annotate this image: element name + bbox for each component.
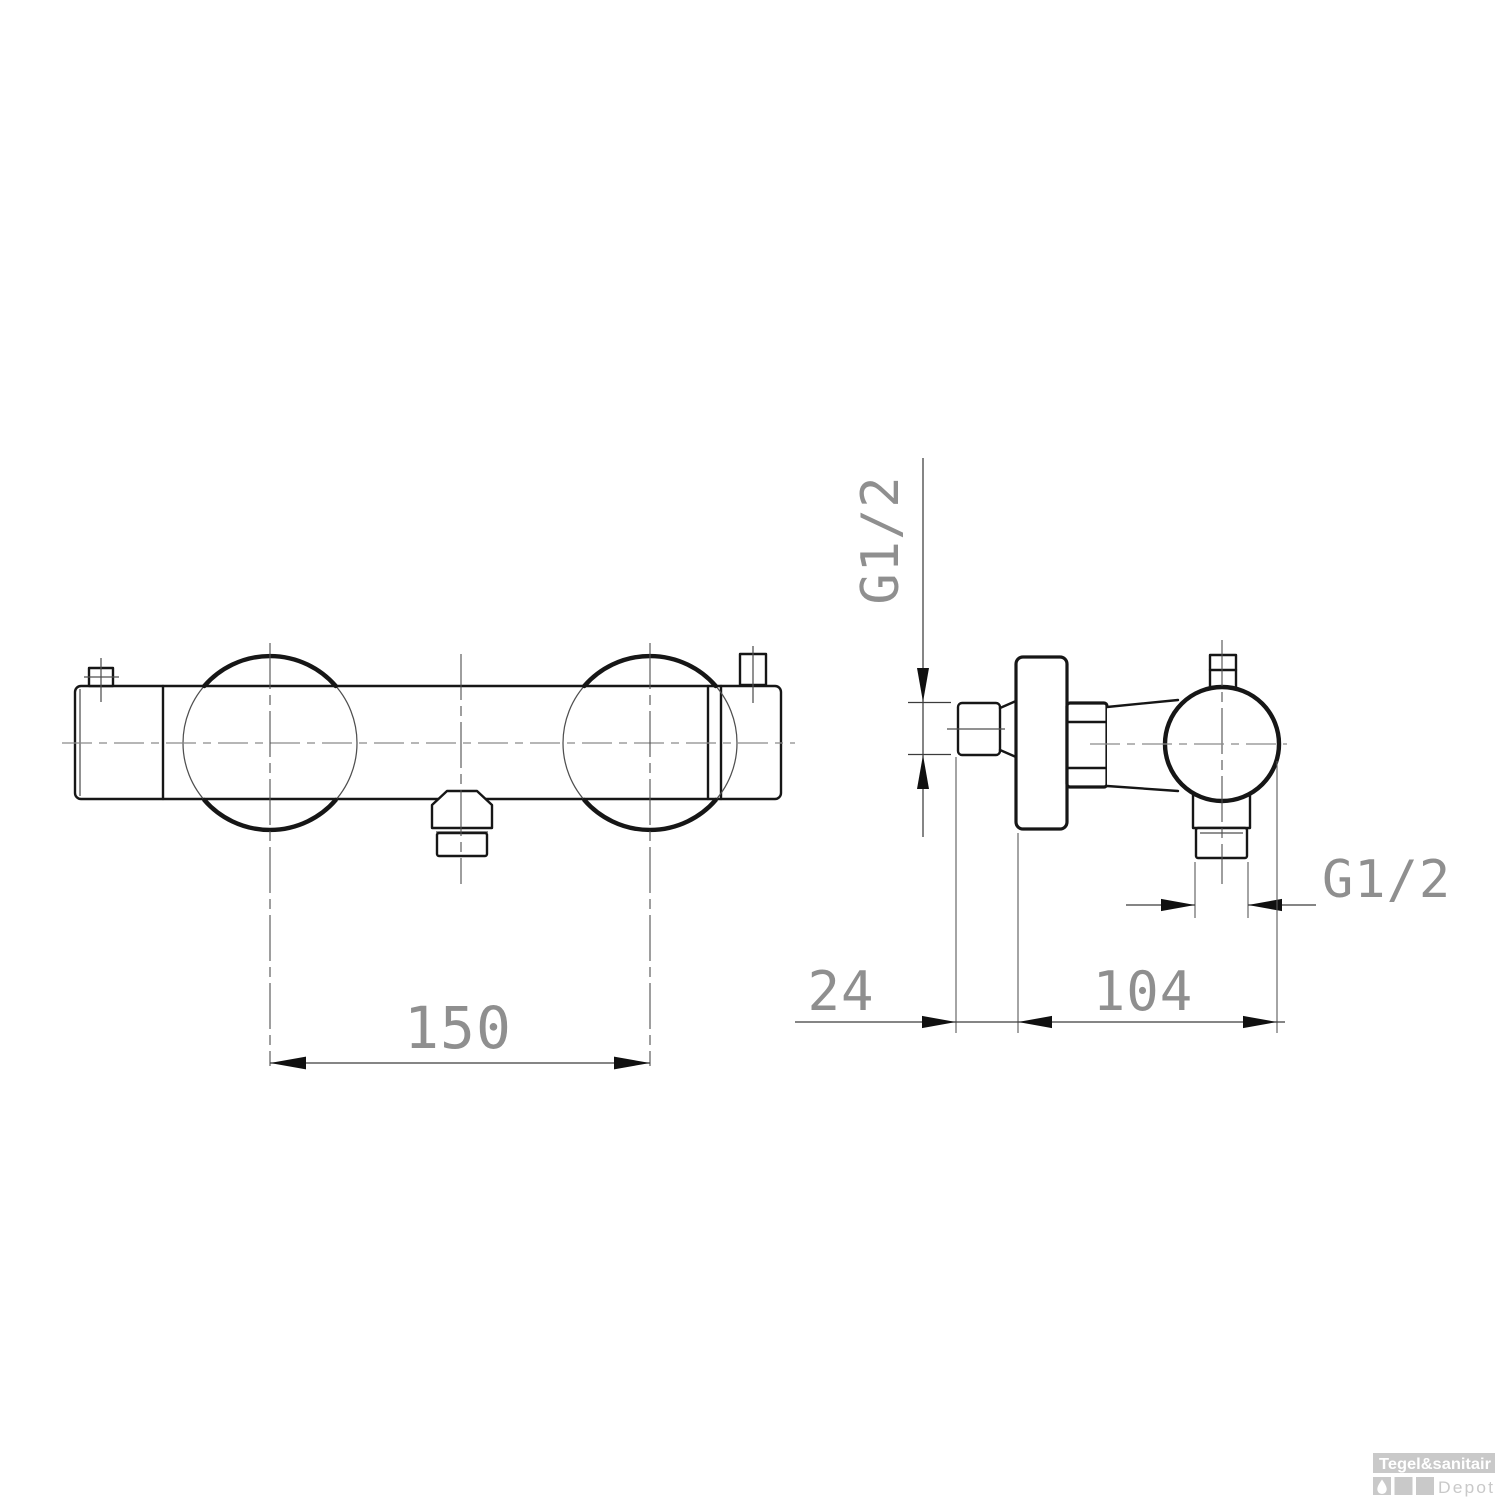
dim-104-arrow-right (1243, 1016, 1277, 1028)
dim-104-label: 104 (1093, 960, 1194, 1023)
drawing-canvas: 150 (0, 0, 1500, 1500)
dim-inlet-arrow-up (917, 755, 929, 789)
watermark-logo: Tegel&sanitair Depot (1373, 1453, 1495, 1497)
dim-150-arrow-right (614, 1057, 650, 1070)
dim-150-arrow-left (270, 1057, 306, 1070)
dimension-outlet-thread: G1/2 (1126, 850, 1451, 918)
outlet-thread-front (437, 833, 487, 856)
side-view: G1/2 G1/2 24 104 (795, 458, 1451, 1033)
dim-24-label: 24 (807, 960, 874, 1023)
hex-nut (1067, 703, 1107, 787)
dim-24-arrow-left (922, 1016, 956, 1028)
inlet-taper-bottom (1000, 750, 1016, 757)
dimension-inlet-thread: G1/2 (851, 458, 951, 837)
watermark-square-3 (1416, 1477, 1434, 1495)
watermark-depot-text: Depot (1438, 1478, 1495, 1497)
technical-drawing: 150 (0, 0, 1500, 1500)
top-fitting-side (1210, 655, 1236, 688)
wall-plate (1016, 657, 1067, 829)
outlet-dome-front (432, 791, 492, 828)
dimension-150: 150 (270, 994, 650, 1069)
watermark-square-2 (1395, 1477, 1413, 1495)
inlet-taper-top (1000, 701, 1016, 708)
watermark-brand-text: Tegel&sanitair (1379, 1456, 1491, 1473)
dim-24-arrow-right (1018, 1016, 1052, 1028)
dim-inlet-label: G1/2 (851, 475, 911, 604)
dim-outlet-arrow-left (1161, 899, 1195, 911)
front-view: 150 (62, 643, 795, 1069)
dim-outlet-label: G1/2 (1322, 850, 1451, 910)
dim-inlet-arrow-down (917, 668, 929, 702)
dim-150-label: 150 (404, 994, 512, 1062)
